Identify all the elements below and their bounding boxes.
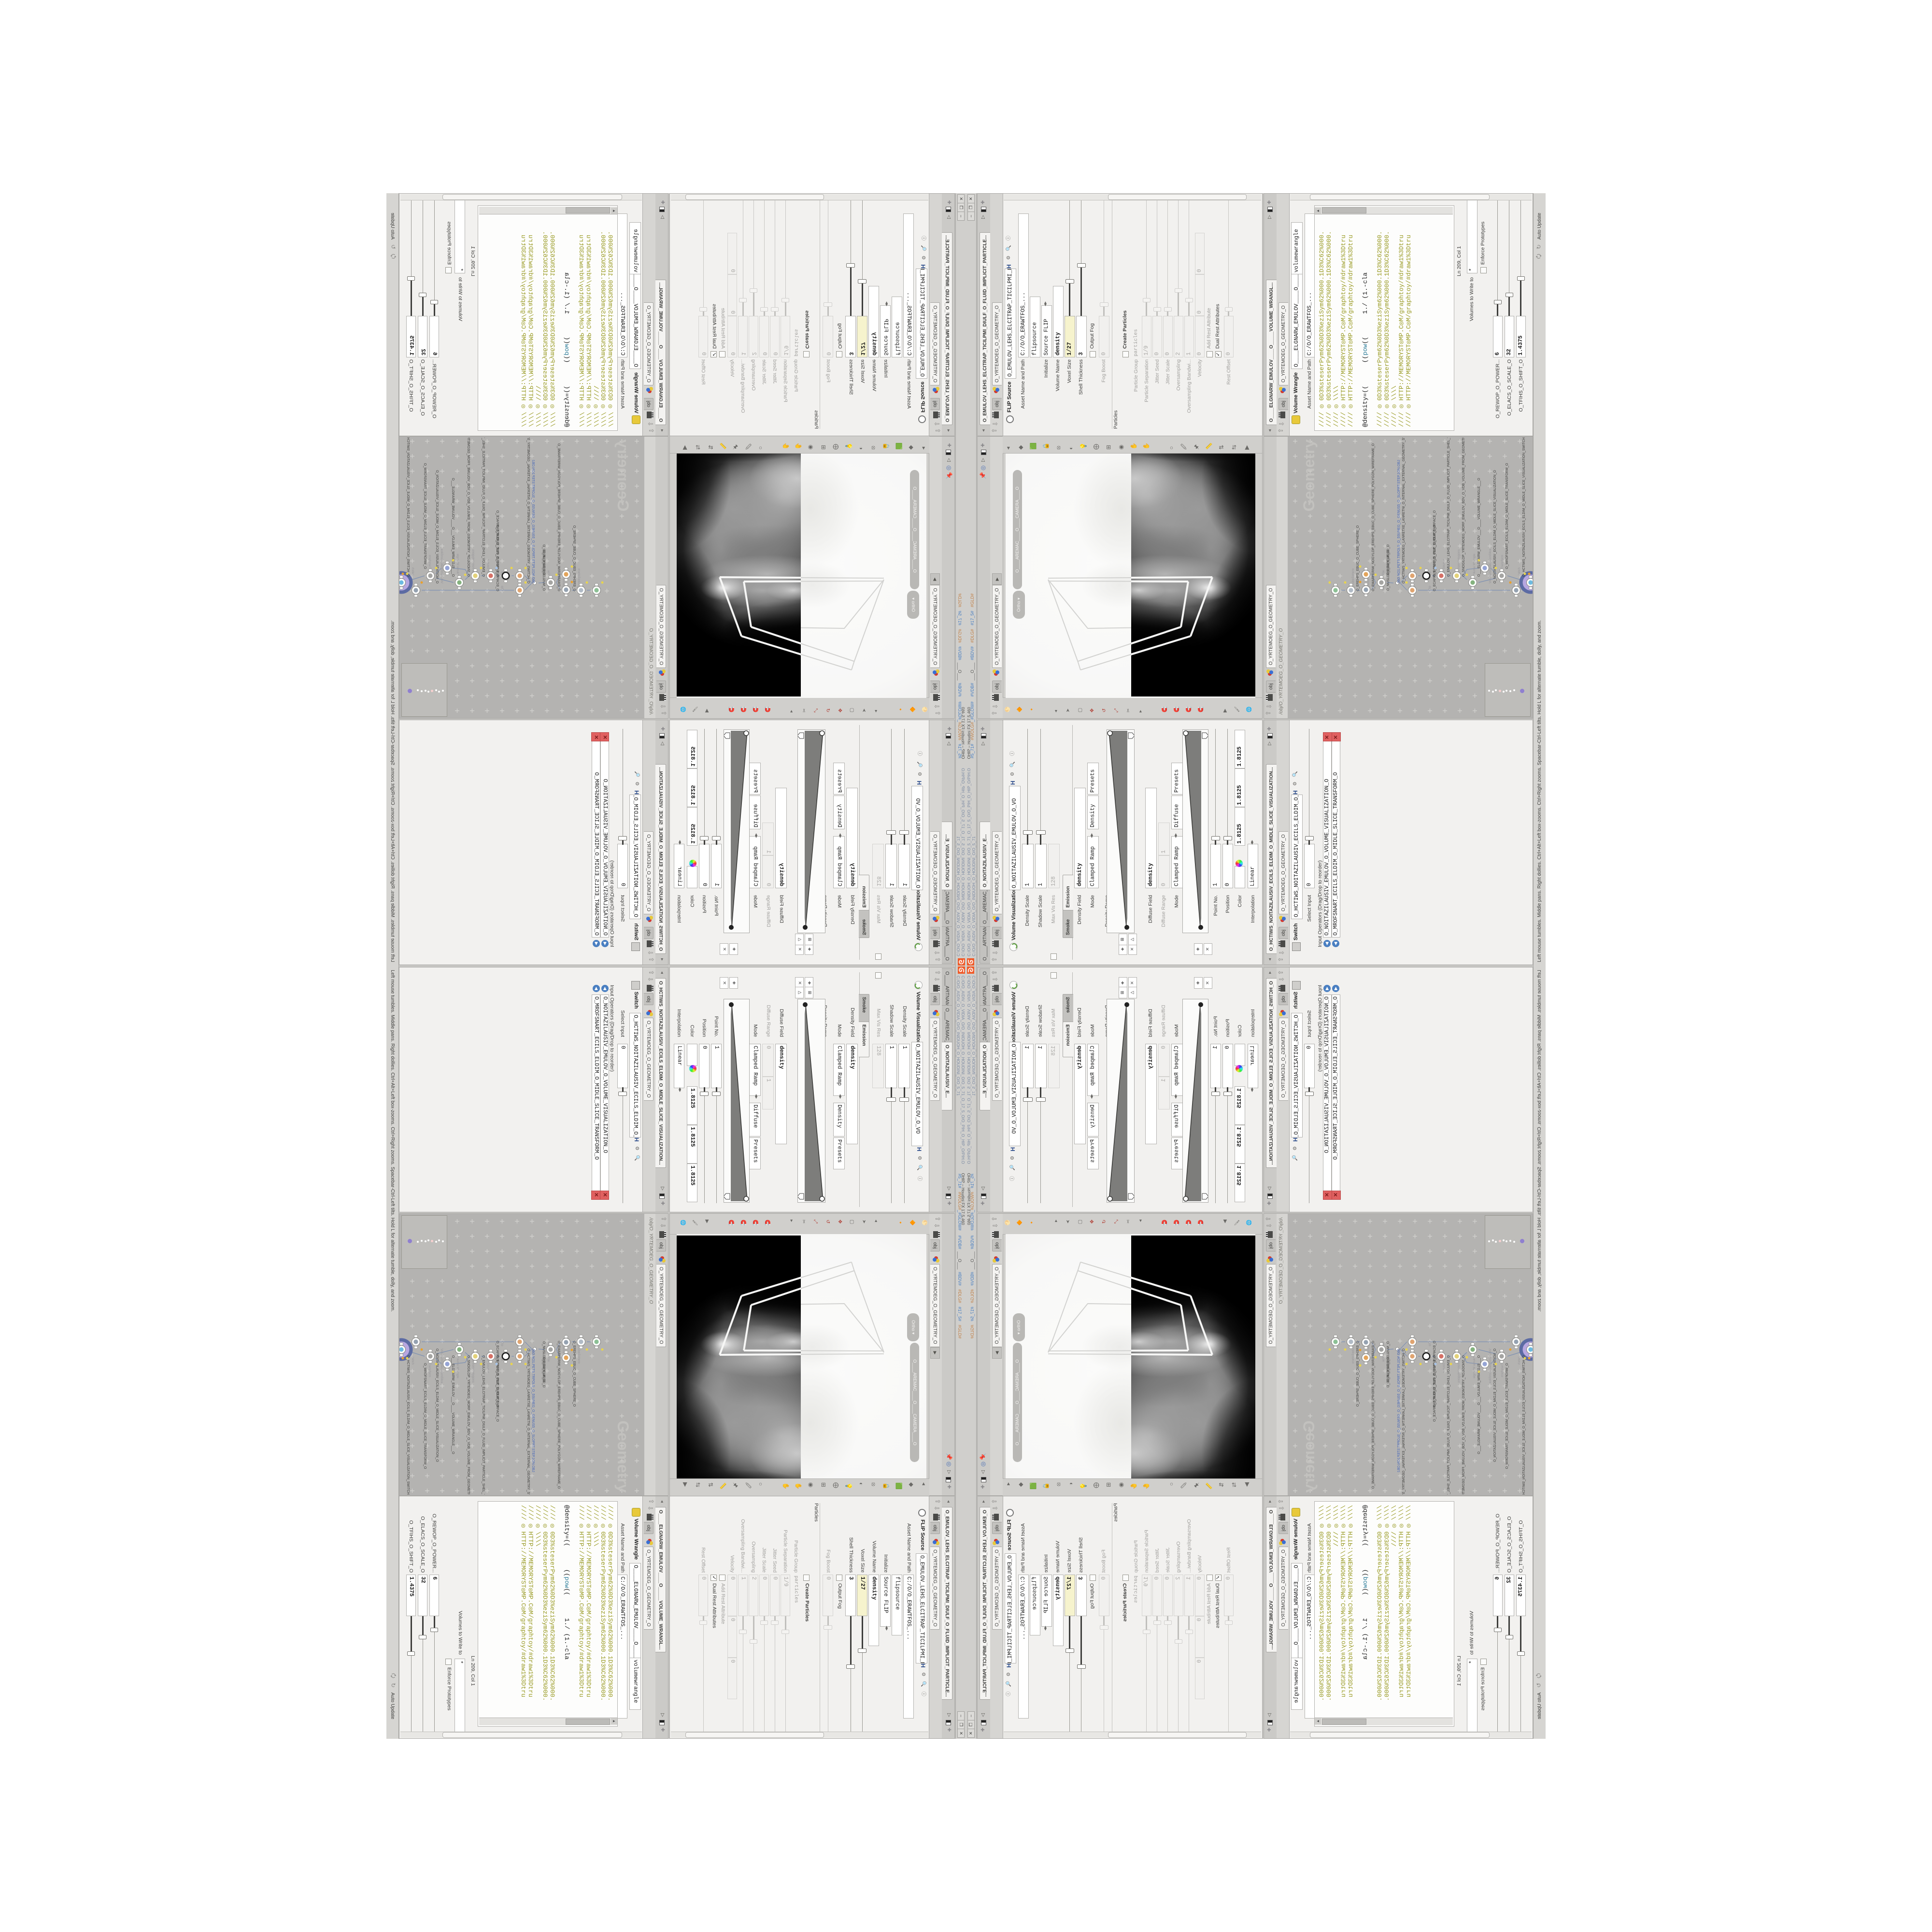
svg-text:O_MROFSNART_ECILS_ELDIM_O_MIDL: O_MROFSNART_ECILS_ELDIM_O_MIDLE_SLICE_TR… — [1506, 1363, 1509, 1469]
svg-text:O_SNOGILOP_YRTEMOEG_MORF_EMULO: O_SNOGILOP_YRTEMOEG_MORF_EMULOV_BDV_O_VD… — [467, 1355, 470, 1494]
svg-text:O_NOITAZILAUSIV_ECILS_ELDIM_O_: O_NOITAZILAUSIV_ECILS_ELDIM_O_MIDLE_SLIC… — [1493, 1349, 1497, 1462]
svg-text:JBO.NO1.PETS.TRPOLS_O_5SUNEG_O: JBO.NO1.PETS.TRPOLS_O_5SUNEG_O_GENUS5_O_… — [531, 1349, 535, 1472]
svg-text:File: File — [1382, 1357, 1385, 1362]
svg-text:O_HCTIWS_YRTEMOEG_LANRETXE_LAN: O_HCTIWS_YRTEMOEG_LANRETXE_LANRETNI_O_IN… — [1402, 438, 1406, 583]
svg-text:O_HCTIWS_NOITAZILAUSIV_ECILS_E: O_HCTIWS_NOITAZILAUSIV_ECILS_ELDIM_O_MID… — [1522, 438, 1526, 577]
svg-text:Clip: Clip — [500, 1341, 504, 1347]
svg-text:JBO.NO1.PETS.TRPOLS_O_5SUNEG_O: JBO.NO1.PETS.TRPOLS_O_5SUNEG_O_GENUS5_O_… — [531, 460, 535, 583]
svg-text:Transform: Transform — [428, 1363, 431, 1377]
svg-text:Volume Wrangle: Volume Wrangle — [1473, 554, 1476, 577]
svg-text:O_EMARFERIW_NOGYLOP_EREHPS_EBU: O_EMARFERIW_NOGYLOP_EREHPS_EBUC_O_CUBE_S… — [1372, 1341, 1375, 1489]
svg-text:Clip: Clip — [1428, 585, 1432, 591]
svg-text:O_MROFSNART_ECILS_ELDIM_O_MIDL: O_MROFSNART_ECILS_ELDIM_O_MIDLE_SLICE_TR… — [423, 463, 426, 569]
svg-text:Clip: Clip — [500, 585, 504, 591]
svg-text:Clip: Clip — [1428, 1341, 1432, 1347]
svg-text:O_NOITAZILAUSIV_ECILS_ELDIM_O_: O_NOITAZILAUSIV_ECILS_ELDIM_O_MIDLE_SLIC… — [1493, 470, 1497, 583]
svg-text:O_BDU_ELIF_O: O_BDU_ELIF_O — [542, 550, 545, 575]
svg-text:File: File — [547, 570, 550, 575]
svg-text:O_EMULOV_LEHS_ELCITRAP_TICILPM: O_EMULOV_LEHS_ELCITRAP_TICILPMI_DIULF_O_… — [482, 438, 485, 577]
svg-text:O_EMARFERIW_NOGYLOP_EREHPS_EBU: O_EMARFERIW_NOGYLOP_EREHPS_EBUC_O_CUBE_S… — [557, 1341, 560, 1489]
svg-text:Volume Wrangle: Volume Wrangle — [456, 1355, 459, 1378]
svg-text:O_BDU_ELIF_O: O_BDU_ELIF_O — [1387, 550, 1390, 575]
svg-text:O_EMULOV_LEHS_ELCITRAP_TICILPM: O_EMULOV_LEHS_ELCITRAP_TICILPMI_DIULF_O_… — [1447, 1355, 1450, 1494]
svg-text:O_NOITAZILAUSIV_ECILS_ELDIM_O_: O_NOITAZILAUSIV_ECILS_ELDIM_O_MIDLE_SLIC… — [435, 1349, 439, 1462]
svg-text:Switch: Switch — [1518, 1355, 1521, 1365]
svg-text:O_NOITAZILAUSIV_ECILS_ELDIM_O_: O_NOITAZILAUSIV_ECILS_ELDIM_O_MIDLE_SLIC… — [435, 470, 439, 583]
svg-text:Transform: Transform — [428, 555, 431, 569]
svg-text:O_SNOGILOP_YRTEMOEG_MORF_EMULO: O_SNOGILOP_YRTEMOEG_MORF_EMULOV_BDV_O_VD… — [1462, 1355, 1465, 1494]
svg-text:O_EREHPS_EBUC_O_CUBE_SPHERE_O: O_EREHPS_EBUC_O_CUBE_SPHERE_O — [1356, 525, 1360, 591]
svg-text:O___ELGNARW_EMULOV___O____VOLU: O___ELGNARW_EMULOV___O____VOLUME_WRANGLE… — [451, 1355, 455, 1454]
svg-text:File: File — [547, 1357, 550, 1362]
svg-text:JBO.NO1.PETS.TRPOLS_O_5SUNEG_O: JBO.NO1.PETS.TRPOLS_O_5SUNEG_O_GENUS5_O_… — [1397, 1349, 1401, 1472]
svg-text:O_EMULOV_LEHS_ELCITRAP_TICILPM: O_EMULOV_LEHS_ELCITRAP_TICILPMI_DIULF_O_… — [1447, 438, 1450, 577]
svg-text:Switch: Switch — [1518, 567, 1521, 577]
svg-text:O___ELGNARW_EMULOV___O____VOLU: O___ELGNARW_EMULOV___O____VOLUME_WRANGLE… — [1477, 1355, 1481, 1454]
svg-text:O_HCTIWS_NOITAZILAUSIV_ECILS_E: O_HCTIWS_NOITAZILAUSIV_ECILS_ELDIM_O_MID… — [406, 438, 410, 577]
svg-text:Volume Wrangle: Volume Wrangle — [456, 554, 459, 577]
svg-text:VolumeVisualizationSlice: VolumeVisualizationSlice — [1489, 548, 1492, 583]
svg-text:O___ELGNARW_EMULOV___O____VOLU: O___ELGNARW_EMULOV___O____VOLUME_WRANGLE… — [451, 478, 455, 577]
svg-text:O_EREHPS_EBUC_O_CUBE_SPHERE_O: O_EREHPS_EBUC_O_CUBE_SPHERE_O — [572, 525, 576, 591]
svg-text:O_EMARFERIW_NOGYLOP_EREHPS_EBU: O_EMARFERIW_NOGYLOP_EREHPS_EBUC_O_CUBE_S… — [557, 443, 560, 591]
svg-text:O_SNOGILOP_YRTEMOEG_MORF_EMULO: O_SNOGILOP_YRTEMOEG_MORF_EMULOV_BDV_O_VD… — [1462, 438, 1465, 577]
svg-text:O_EMULOV_LEHS_ELCITRAP_TICILPM: O_EMULOV_LEHS_ELCITRAP_TICILPMI_DIULF_O_… — [482, 1355, 485, 1494]
svg-text:O_BDU_ELIF_O: O_BDU_ELIF_O — [1387, 1357, 1390, 1382]
svg-text:Volume Wrangle: Volume Wrangle — [1473, 1355, 1476, 1378]
svg-text:File: File — [1382, 570, 1385, 575]
svg-text:O_EMARFERIW_NOGYLOP_EREHPS_EBU: O_EMARFERIW_NOGYLOP_EREHPS_EBUC_O_CUBE_S… — [1372, 443, 1375, 591]
svg-text:O___ELGNARW_EMULOV___O____VOLU: O___ELGNARW_EMULOV___O____VOLUME_WRANGLE… — [1477, 478, 1481, 577]
svg-text:Switch: Switch — [411, 567, 414, 577]
svg-text:Transform: Transform — [1501, 1363, 1504, 1377]
svg-text:VolumeVisualizationSlice: VolumeVisualizationSlice — [440, 1349, 443, 1384]
svg-text:O_ECAFRUS_PILC_O_CLIP_SURFACE_: O_ECAFRUS_PILC_O_CLIP_SURFACE_O — [496, 1341, 499, 1407]
svg-text:Switch: Switch — [411, 1355, 414, 1365]
svg-text:O_ECAFRUS_PILC_O_CLIP_SURFACE_: O_ECAFRUS_PILC_O_CLIP_SURFACE_O — [1433, 1341, 1436, 1407]
svg-text:JBO.NO1.PETS.TRPOLS_O_5SUNEG_O: JBO.NO1.PETS.TRPOLS_O_5SUNEG_O_GENUS5_O_… — [1397, 460, 1401, 583]
svg-text:O_ECAFRUS_PILC_O_CLIP_SURFACE_: O_ECAFRUS_PILC_O_CLIP_SURFACE_O — [496, 525, 499, 591]
svg-text:O_HCTIWS_YRTEMOEG_LANRETXE_LAN: O_HCTIWS_YRTEMOEG_LANRETXE_LANRETNI_O_IN… — [1402, 1349, 1406, 1494]
svg-text:O_HCTIWS_YRTEMOEG_LANRETXE_LAN: O_HCTIWS_YRTEMOEG_LANRETXE_LANRETNI_O_IN… — [526, 1349, 530, 1494]
svg-text:O_HCTIWS_YRTEMOEG_LANRETXE_LAN: O_HCTIWS_YRTEMOEG_LANRETXE_LANRETNI_O_IN… — [526, 438, 530, 583]
svg-text:Transform: Transform — [1501, 555, 1504, 569]
svg-text:O_EREHPS_EBUC_O_CUBE_SPHERE_O: O_EREHPS_EBUC_O_CUBE_SPHERE_O — [572, 1341, 576, 1407]
svg-text:O_ECAFRUS_PILC_O_CLIP_SURFACE_: O_ECAFRUS_PILC_O_CLIP_SURFACE_O — [1433, 525, 1436, 591]
svg-text:O_MROFSNART_ECILS_ELDIM_O_MIDL: O_MROFSNART_ECILS_ELDIM_O_MIDLE_SLICE_TR… — [423, 1363, 426, 1469]
svg-text:VolumeVisualizationSlice: VolumeVisualizationSlice — [440, 548, 443, 583]
svg-text:O_MROFSNART_ECILS_ELDIM_O_MIDL: O_MROFSNART_ECILS_ELDIM_O_MIDLE_SLICE_TR… — [1506, 463, 1509, 569]
svg-text:O_SNOGILOP_YRTEMOEG_MORF_EMULO: O_SNOGILOP_YRTEMOEG_MORF_EMULOV_BDV_O_VD… — [467, 438, 470, 577]
svg-text:O_BDU_ELIF_O: O_BDU_ELIF_O — [542, 1357, 545, 1382]
svg-text:O_HCTIWS_NOITAZILAUSIV_ECILS_E: O_HCTIWS_NOITAZILAUSIV_ECILS_ELDIM_O_MID… — [1522, 1355, 1526, 1494]
svg-text:O_HCTIWS_NOITAZILAUSIV_ECILS_E: O_HCTIWS_NOITAZILAUSIV_ECILS_ELDIM_O_MID… — [406, 1355, 410, 1494]
svg-text:O_EREHPS_EBUC_O_CUBE_SPHERE_O: O_EREHPS_EBUC_O_CUBE_SPHERE_O — [1356, 1341, 1360, 1407]
svg-text:VolumeVisualizationSlice: VolumeVisualizationSlice — [1489, 1349, 1492, 1384]
